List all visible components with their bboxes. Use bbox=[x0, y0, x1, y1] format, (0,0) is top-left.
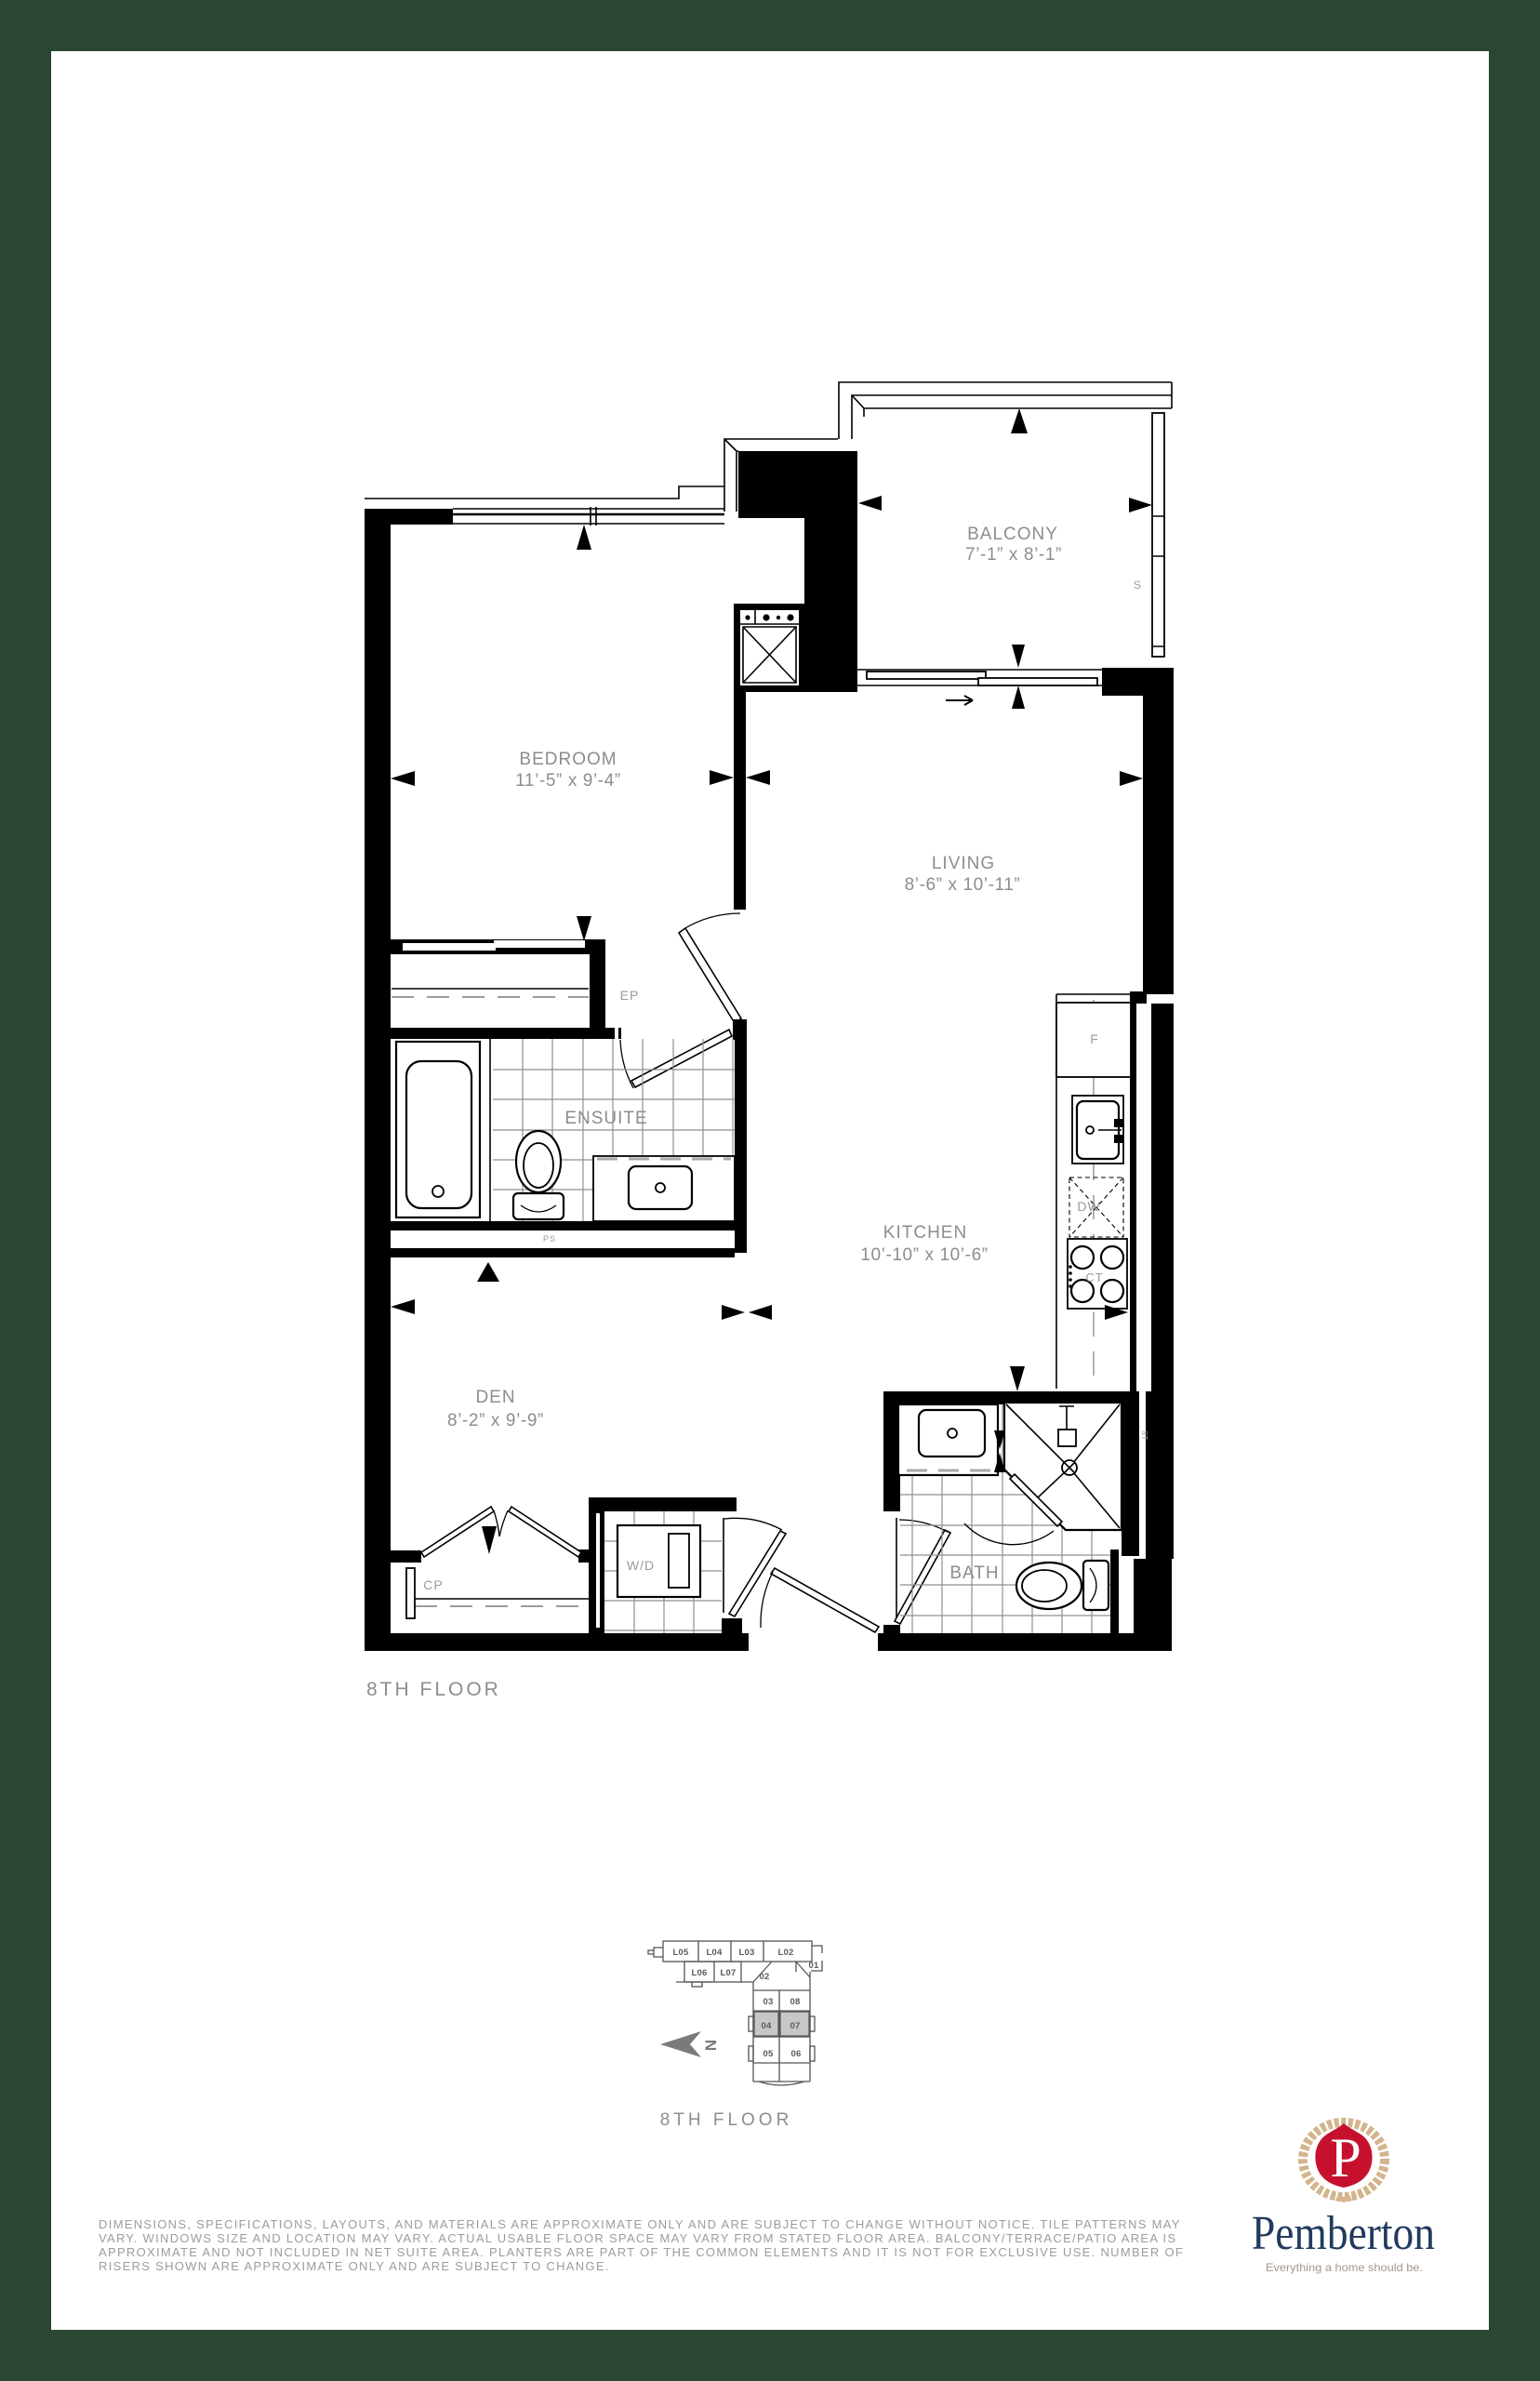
svg-text:CP: CP bbox=[423, 1577, 443, 1592]
svg-text:8’-2” x 9’-9”: 8’-2” x 9’-9” bbox=[447, 1411, 544, 1430]
svg-text:L04: L04 bbox=[707, 1948, 723, 1958]
svg-text:L07: L07 bbox=[721, 1968, 737, 1978]
svg-text:PS: PS bbox=[543, 1234, 556, 1244]
svg-text:W/D: W/D bbox=[627, 1558, 655, 1573]
svg-text:8’-6” x 10’-11”: 8’-6” x 10’-11” bbox=[905, 875, 1021, 895]
svg-text:07: 07 bbox=[790, 2021, 801, 2031]
svg-text:BATH: BATH bbox=[949, 1563, 999, 1583]
svg-text:DW: DW bbox=[1077, 1199, 1100, 1214]
svg-text:L05: L05 bbox=[673, 1948, 689, 1958]
svg-text:8TH FLOOR: 8TH FLOOR bbox=[366, 1679, 501, 1700]
svg-text:BALCONY: BALCONY bbox=[967, 525, 1058, 544]
svg-text:APPROXIMATE AND NOT INCLUDED I: APPROXIMATE AND NOT INCLUDED IN NET SUIT… bbox=[99, 2245, 1184, 2259]
svg-text:06: 06 bbox=[791, 2049, 802, 2059]
svg-text:DEN: DEN bbox=[475, 1388, 515, 1407]
svg-text:LIVING: LIVING bbox=[932, 854, 995, 873]
svg-text:Everything a home should be.: Everything a home should be. bbox=[1266, 2261, 1423, 2274]
svg-text:ENSUITE: ENSUITE bbox=[564, 1109, 647, 1128]
svg-text:KITCHEN: KITCHEN bbox=[883, 1223, 967, 1243]
svg-text:04: 04 bbox=[762, 2021, 772, 2031]
svg-text:ST: ST bbox=[1140, 1430, 1148, 1440]
svg-text:DIMENSIONS, SPECIFICATIONS, LA: DIMENSIONS, SPECIFICATIONS, LAYOUTS, AND… bbox=[99, 2217, 1181, 2231]
svg-text:7’-1” x 8’-1”: 7’-1” x 8’-1” bbox=[965, 545, 1062, 565]
svg-text:11’-5” x 9’-4”: 11’-5” x 9’-4” bbox=[515, 771, 621, 791]
svg-text:RISERS SHOWN ARE APPROXIMATE O: RISERS SHOWN ARE APPROXIMATE ONLY AND AR… bbox=[99, 2259, 610, 2273]
svg-text:10’-10” x 10’-6”: 10’-10” x 10’-6” bbox=[860, 1245, 988, 1265]
svg-text:L06: L06 bbox=[692, 1968, 708, 1978]
svg-text:VARY. WINDOWS SIZE AND LOCATIO: VARY. WINDOWS SIZE AND LOCATION MAY VARY… bbox=[99, 2231, 1176, 2245]
svg-text:03: 03 bbox=[763, 1997, 774, 2007]
svg-text:8TH FLOOR: 8TH FLOOR bbox=[660, 2110, 793, 2130]
svg-text:F: F bbox=[1090, 1031, 1099, 1046]
svg-text:EP: EP bbox=[620, 988, 640, 1003]
svg-text:P: P bbox=[1330, 2127, 1361, 2188]
svg-text:N: N bbox=[702, 2040, 720, 2051]
svg-text:L02: L02 bbox=[778, 1948, 794, 1958]
svg-text:BEDROOM: BEDROOM bbox=[519, 750, 617, 769]
svg-text:05: 05 bbox=[763, 2049, 774, 2059]
svg-text:L03: L03 bbox=[739, 1948, 755, 1958]
svg-text:CT: CT bbox=[1085, 1270, 1103, 1284]
svg-text:02: 02 bbox=[760, 1972, 770, 1982]
svg-text:08: 08 bbox=[790, 1997, 801, 2007]
svg-text:01: 01 bbox=[809, 1961, 819, 1971]
svg-text:Pemberton: Pemberton bbox=[1252, 2207, 1435, 2260]
svg-text:S: S bbox=[1134, 579, 1141, 592]
